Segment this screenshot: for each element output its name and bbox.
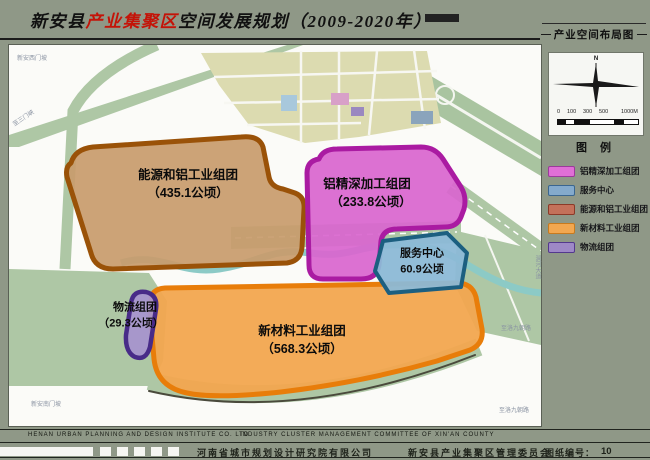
town-grid: [201, 50, 441, 143]
sidebar-map-title: 产业空间布局图: [541, 27, 647, 42]
footer-rule: [0, 442, 650, 443]
scale-tick: 0: [557, 109, 560, 115]
zone-label-energy-name: 能源和铝工业组团: [138, 169, 238, 182]
town-block-pink: [331, 93, 349, 105]
scale-bar-segment: [558, 120, 566, 124]
legend-label: 能源和铝工业组团: [580, 203, 648, 215]
scale-tick: 300: [583, 109, 592, 115]
scale-bar-segment: [574, 120, 590, 124]
plan-map: 能源和铝工业组团 （435.1公顷） 铝精深加工组团 （233.8公顷） 服务中…: [8, 44, 542, 427]
title-part-county: 新安县: [30, 12, 86, 31]
zone-label-newmat-area: （568.3公顷）: [261, 343, 342, 356]
footer-stamp-box: [134, 447, 145, 456]
legend-swatch-logistics: [548, 242, 575, 253]
footer-rule: [0, 429, 650, 430]
town-block-purple: [351, 107, 364, 116]
legend-item: 物流组团: [548, 241, 644, 253]
scale-tick: 1000M: [621, 109, 638, 115]
legend-label: 物流组团: [580, 241, 614, 253]
legend-swatch-new-materials: [548, 223, 575, 234]
footer-stamp-box: [100, 447, 111, 456]
rule-left: [541, 34, 551, 36]
legend-item: 新材料工业组团: [548, 222, 644, 234]
scale-bar-segment: [614, 120, 624, 124]
zone-label-logistics-name: 物流组团: [113, 303, 157, 314]
map-base-drawing: [9, 45, 541, 426]
zone-label-service-name: 服务中心: [400, 249, 444, 260]
legend-swatch-service-center: [548, 185, 575, 196]
title-part-plan: 空间发展规划（2009-2020年）: [178, 12, 432, 31]
legend-label: 铝精深加工组团: [580, 165, 640, 177]
legend-swatch-energy-aluminum: [548, 204, 575, 215]
scale-tick: 100: [567, 109, 576, 115]
page-title: 新安县产业集聚区空间发展规划（2009-2020年）: [30, 7, 432, 32]
map-annotation: 新安西门坡: [17, 53, 47, 62]
zone-label-logistics-area: （29.3公顷）: [98, 319, 163, 330]
legend: 图 例 铝精深加工组团 服务中心 能源和铝工业组团 新材料工业组团 物流组团: [548, 139, 644, 260]
zone-label-service-area: 60.9公顷: [400, 265, 443, 276]
town-blocks: [201, 51, 441, 143]
plan-sheet: 新安县产业集聚区空间发展规划（2009-2020年）: [0, 0, 650, 460]
north-scale-box: N 0 100 300 500 1000M: [548, 52, 644, 136]
zone-new-materials: [150, 283, 483, 396]
legend-swatch-aluminum-processing: [548, 166, 575, 177]
footer-stamp-box: [168, 447, 179, 456]
legend-item: 能源和铝工业组团: [548, 203, 644, 215]
title-part-cluster: 产业集聚区: [86, 12, 179, 31]
map-annotation: 至洛九朝路: [501, 323, 531, 332]
scale-tick: 500: [599, 109, 608, 115]
legend-item: 服务中心: [548, 184, 644, 196]
zone-label-aluminum-name: 铝精深加工组团: [323, 178, 411, 191]
footer-english-institute: HENAN URBAN PLANNING AND DESIGN INSTITUT…: [28, 432, 249, 438]
title-underline: [0, 38, 540, 40]
map-annotation: 涧河大道: [533, 255, 542, 279]
zone-label-aluminum-area: （233.8公顷）: [330, 196, 411, 209]
zone-energy-aluminum: [67, 137, 305, 269]
scale-tick-labels: 0 100 300 500 1000M: [555, 109, 639, 117]
zone-label-newmat-name: 新材料工业组团: [258, 325, 346, 338]
footer-signature-bar: [0, 447, 93, 456]
map-annotation: 至洛九朝路: [499, 405, 529, 414]
map-title-text: 产业空间布局图: [554, 27, 635, 42]
town-block-lightblue: [281, 95, 297, 111]
map-annotation: 新安南门坡: [31, 399, 61, 408]
footer-stamp-box: [117, 447, 128, 456]
footer-rule: [0, 457, 650, 458]
legend-label: 新材料工业组团: [580, 222, 640, 234]
title-dash-decoration: [425, 14, 459, 22]
footer-english-committee: INDUSTRY CLUSTER MANAGEMENT COMMITTEE OF…: [240, 432, 495, 438]
footer-stamp-box: [151, 447, 162, 456]
legend-title: 图 例: [548, 139, 644, 155]
scale-bar: [557, 119, 639, 125]
compass-rose-icon: [549, 61, 643, 111]
sheet-number-value: 10: [601, 446, 612, 457]
town-block-blue: [411, 111, 433, 124]
sidebar-top-rule: [542, 23, 646, 24]
zone-label-energy-area: （435.1公顷）: [147, 187, 228, 200]
legend-item: 铝精深加工组团: [548, 165, 644, 177]
legend-label: 服务中心: [580, 184, 614, 196]
rule-right: [637, 34, 647, 36]
